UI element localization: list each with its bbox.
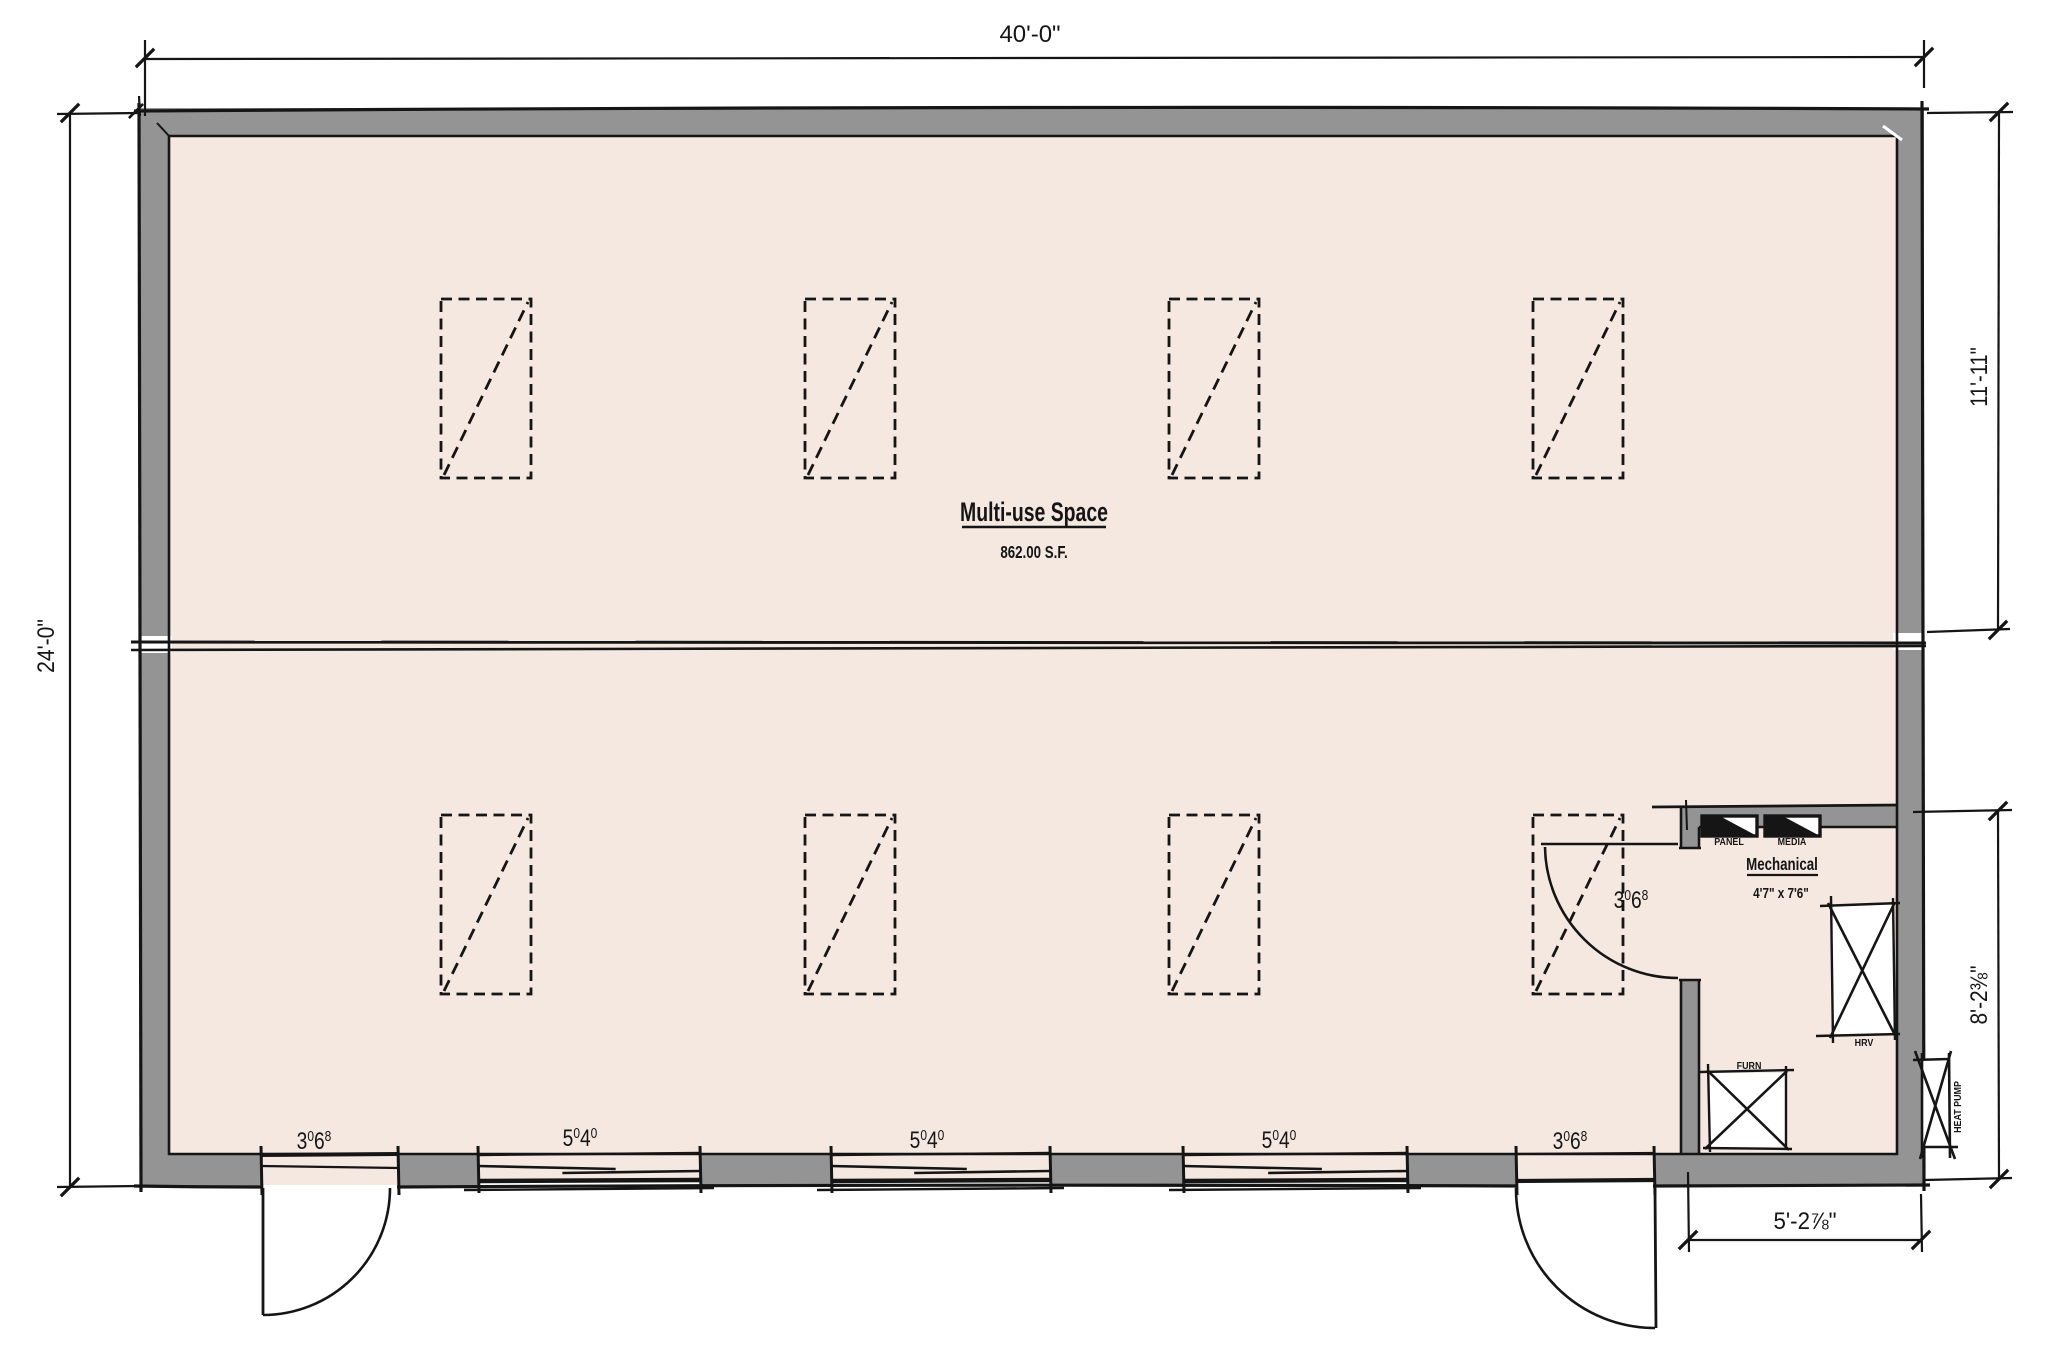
svg-text:MEDIA: MEDIA xyxy=(1778,836,1807,848)
svg-text:8'-2⅜": 8'-2⅜" xyxy=(1966,966,1993,1025)
svg-text:Multi-use Space: Multi-use Space xyxy=(960,497,1108,527)
svg-text:HEAT PUMP: HEAT PUMP xyxy=(1952,1081,1964,1133)
svg-text:24'-0": 24'-0" xyxy=(33,619,60,673)
svg-text:FURN: FURN xyxy=(1737,1060,1762,1072)
svg-text:PANEL: PANEL xyxy=(1714,836,1744,848)
svg-text:5'-2⅞": 5'-2⅞" xyxy=(1773,1207,1836,1234)
svg-text:11'-11": 11'-11" xyxy=(1965,347,1992,407)
svg-text:40'-0": 40'-0" xyxy=(999,21,1060,48)
svg-text:Mechanical: Mechanical xyxy=(1746,855,1818,874)
svg-text:HRV: HRV xyxy=(1855,1037,1874,1049)
svg-text:862.00 S.F.: 862.00 S.F. xyxy=(1000,543,1067,562)
svg-text:4'7" x 7'6": 4'7" x 7'6" xyxy=(1753,885,1809,902)
